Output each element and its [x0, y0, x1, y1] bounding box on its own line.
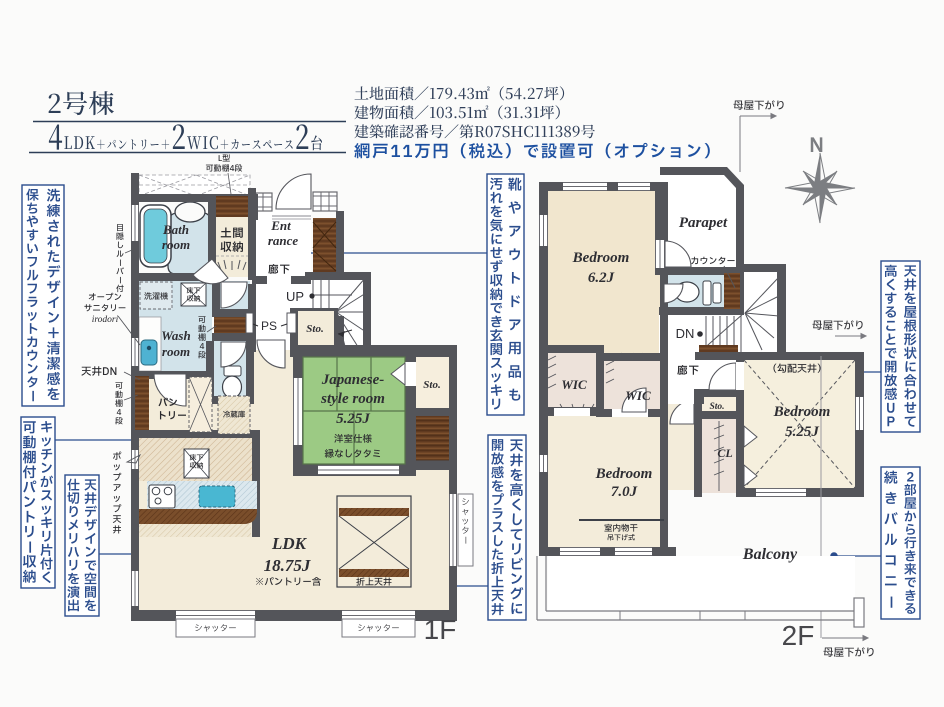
- svg-text:rance: rance: [268, 233, 299, 248]
- svg-text:irodori: irodori: [92, 315, 119, 325]
- svg-text:room: room: [162, 237, 190, 252]
- svg-text:Wash: Wash: [161, 328, 190, 343]
- svg-text:Japanese-: Japanese-: [321, 372, 385, 388]
- svg-text:Bedroom: Bedroom: [773, 404, 831, 420]
- svg-text:PS: PS: [261, 319, 277, 333]
- svg-text:Ent: Ent: [270, 218, 291, 233]
- svg-text:2F: 2F: [782, 620, 815, 651]
- svg-text:DN: DN: [676, 326, 695, 341]
- svg-text:WIC: WIC: [561, 377, 587, 392]
- svg-text:UP: UP: [286, 289, 304, 304]
- svg-text:CL: CL: [717, 446, 732, 460]
- svg-text:1F: 1F: [424, 614, 457, 645]
- svg-text:style room: style room: [320, 391, 385, 407]
- svg-text:Balcony: Balcony: [742, 546, 798, 563]
- svg-text:18.75J: 18.75J: [264, 556, 311, 575]
- svg-text:7.0J: 7.0J: [611, 484, 638, 500]
- svg-text:Sto.: Sto.: [423, 379, 440, 391]
- svg-text:room: room: [162, 344, 190, 359]
- svg-text:Bedroom: Bedroom: [572, 250, 630, 266]
- svg-text:Parapet: Parapet: [679, 215, 728, 231]
- svg-text:6.2J: 6.2J: [588, 270, 615, 286]
- svg-text:Bedroom: Bedroom: [595, 466, 653, 482]
- svg-text:LDK: LDK: [271, 534, 308, 553]
- svg-text:Sto.: Sto.: [306, 323, 323, 335]
- svg-text:WIC: WIC: [625, 388, 651, 403]
- svg-text:5.25J: 5.25J: [785, 424, 819, 440]
- svg-text:Sto.: Sto.: [709, 402, 724, 412]
- svg-text:5.25J: 5.25J: [336, 411, 370, 427]
- svg-text:Bath: Bath: [162, 222, 189, 237]
